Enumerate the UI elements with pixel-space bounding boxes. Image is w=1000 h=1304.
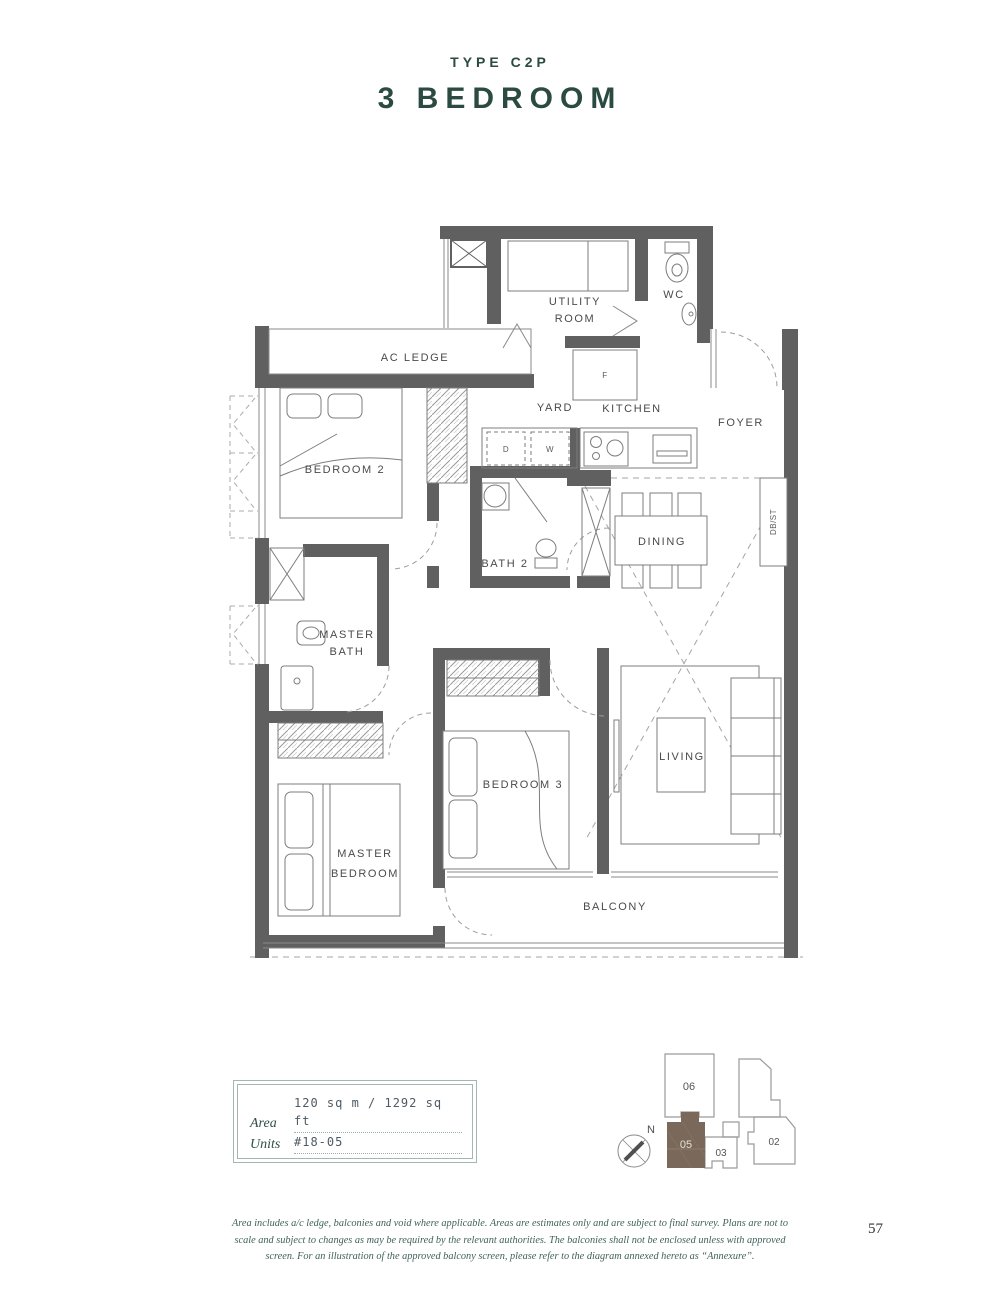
unit-type-label: TYPE C2P — [0, 54, 1000, 70]
floor-plan-page: TYPE C2P 3 BEDROOM — [0, 0, 1000, 1304]
area-row: Area 120 sq m / 1292 sq ft — [250, 1094, 462, 1133]
label-balcony: BALCONY — [583, 901, 647, 913]
label-fridge: F — [602, 371, 607, 380]
floor-plan-drawing: AC LEDGE UTILITY ROOM WC YARD KITCHEN FO… — [225, 226, 845, 968]
label-master-bath-2: BATH — [330, 646, 365, 658]
unit-06-label: 06 — [683, 1081, 695, 1093]
label-db-st: DB/ST — [769, 509, 778, 535]
label-master-bath-1: MASTER — [319, 629, 374, 641]
unit-info-box-inner: Area 120 sq m / 1292 sq ft Units #18-05 — [237, 1084, 473, 1159]
label-kitchen: KITCHEN — [602, 403, 661, 415]
disclaimer-line-3: screen. For an illustration of the appro… — [160, 1249, 860, 1266]
page-number: 57 — [868, 1221, 883, 1238]
label-bedroom2: BEDROOM 2 — [305, 464, 385, 476]
key-plan: 06 05 03 02 N — [602, 1040, 812, 1200]
units-value-underline: #18-05 — [294, 1133, 462, 1154]
unit-03-label: 03 — [715, 1148, 727, 1159]
area-value: 120 sq m / 1292 sq ft — [294, 1096, 442, 1128]
label-washer: W — [546, 445, 554, 454]
units-row: Units #18-05 — [250, 1133, 462, 1154]
label-master-bedroom-2: BEDROOM — [331, 868, 399, 880]
disclaimer-line-1: Area includes a/c ledge, balconies and v… — [160, 1216, 860, 1233]
label-utility-2: ROOM — [555, 313, 596, 325]
label-wc: WC — [663, 289, 685, 301]
label-bedroom3: BEDROOM 3 — [483, 779, 563, 791]
units-value: #18-05 — [294, 1135, 343, 1149]
area-label: Area — [250, 1116, 284, 1133]
disclaimer-text: Area includes a/c ledge, balconies and v… — [160, 1216, 860, 1266]
label-dryer: D — [503, 445, 509, 454]
label-master-bedroom-1: MASTER — [337, 848, 392, 860]
label-living: LIVING — [659, 751, 705, 763]
page-title: 3 BEDROOM — [0, 82, 1000, 116]
label-yard: YARD — [537, 402, 573, 414]
label-foyer: FOYER — [718, 417, 764, 429]
shaft-box — [451, 240, 487, 267]
label-bath2: BATH 2 — [481, 558, 528, 570]
unit-02-label: 02 — [768, 1137, 780, 1148]
casement-windows — [230, 396, 258, 664]
label-utility-1: UTILITY — [549, 296, 601, 308]
units-label: Units — [250, 1137, 284, 1154]
compass: N — [618, 1124, 655, 1167]
unit-05-label: 05 — [680, 1139, 692, 1151]
label-dining: DINING — [638, 536, 686, 548]
label-ac-ledge: AC LEDGE — [381, 352, 449, 364]
area-value-underline: 120 sq m / 1292 sq ft — [294, 1094, 462, 1133]
unit-info-box: Area 120 sq m / 1292 sq ft Units #18-05 — [233, 1080, 477, 1163]
compass-north-label: N — [647, 1124, 655, 1136]
disclaimer-line-2: scale and subject to changes as may be r… — [160, 1233, 860, 1250]
